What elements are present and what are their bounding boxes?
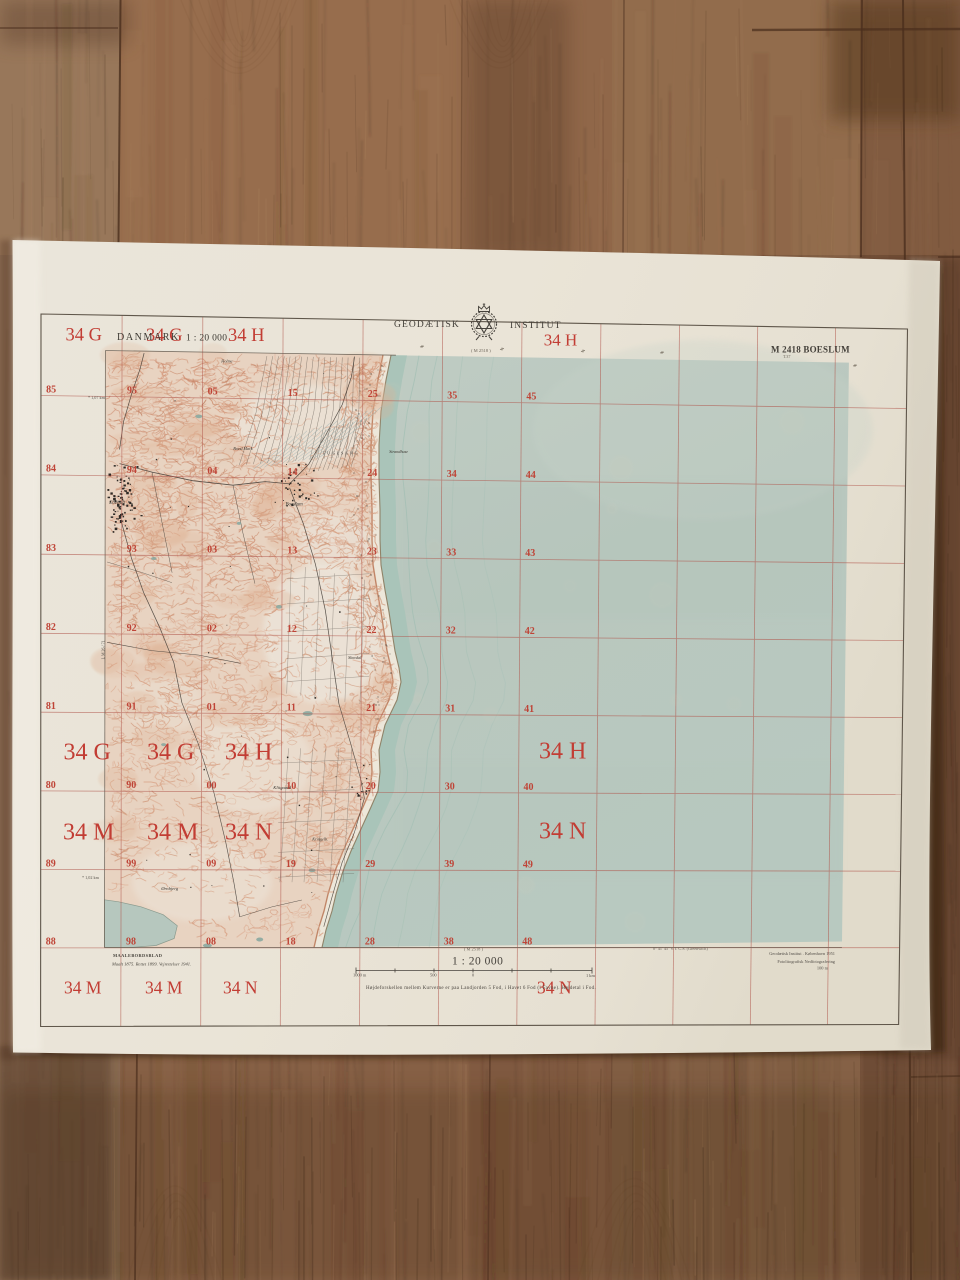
svg-text:DANMARK: DANMARK <box>117 332 180 343</box>
svg-text:Skovdal: Skovdal <box>348 655 362 660</box>
svg-text:19: 19 <box>286 859 296 870</box>
svg-text:30: 30 <box>445 782 455 793</box>
svg-text:08: 08 <box>206 937 216 948</box>
svg-text:34 N: 34 N <box>225 820 272 846</box>
svg-text:34 H: 34 H <box>225 740 272 766</box>
svg-text:Fotolitografisk Nedfotografer: Fotolitografisk Nedfotografering <box>777 959 835 964</box>
svg-text:0° 41′ 45″ v. f. C.S. (Greenwi: 0° 41′ 45″ v. f. C.S. (Greenwich) <box>653 946 708 951</box>
svg-text:100 m: 100 m <box>817 966 829 971</box>
svg-text:90: 90 <box>126 780 136 791</box>
svg-text:INSTITUT: INSTITUT <box>510 321 562 331</box>
svg-text:Højdeforskellen mellem Kurve: Højdeforskellen mellem Kurverne er paa L… <box>366 986 596 991</box>
svg-text:FUGLSANG: FUGLSANG <box>323 450 359 455</box>
svg-text:34 G: 34 G <box>64 740 111 766</box>
svg-text:34 G: 34 G <box>147 740 194 766</box>
svg-text:1 km: 1 km <box>586 973 595 978</box>
svg-text:39: 39 <box>444 859 454 870</box>
svg-text:02: 02 <box>207 624 217 635</box>
svg-text:83: 83 <box>46 543 56 554</box>
svg-text:Klitgaard: Klitgaard <box>272 785 291 790</box>
svg-text:88: 88 <box>46 937 56 948</box>
svg-text:85: 85 <box>46 384 56 395</box>
svg-text:18: 18 <box>286 937 296 948</box>
svg-text:25: 25 <box>368 389 378 400</box>
svg-text:34 M: 34 M <box>64 978 102 998</box>
svg-text:95: 95 <box>127 386 137 397</box>
svg-text:15: 15 <box>288 388 298 399</box>
svg-text:03: 03 <box>207 545 217 556</box>
svg-text:Boesl.Mark: Boesl.Mark <box>233 446 253 451</box>
svg-text:00: 00 <box>207 780 217 791</box>
svg-text:MAALEBORDSBLAD: MAALEBORDSBLAD <box>113 953 162 958</box>
svg-text:20: 20 <box>366 781 376 792</box>
svg-text:80: 80 <box>46 780 56 791</box>
svg-text:05: 05 <box>208 387 218 398</box>
svg-text:T.37: T.37 <box>783 354 790 359</box>
svg-text:45: 45 <box>526 392 536 403</box>
svg-text:Boeslum: Boeslum <box>286 502 304 507</box>
svg-text:14: 14 <box>288 467 298 478</box>
svg-text:13: 13 <box>287 546 297 557</box>
svg-text:12: 12 <box>287 624 297 635</box>
svg-text:Geodætisk Institut . Københa: Geodætisk Institut . København 1951 <box>769 951 835 956</box>
svg-text:500: 500 <box>430 973 437 978</box>
svg-text:28: 28 <box>365 937 375 948</box>
svg-text:1 : 20 000: 1 : 20 000 <box>452 956 503 968</box>
svg-text:22: 22 <box>367 625 377 636</box>
svg-text:34 G: 34 G <box>66 326 103 346</box>
svg-text:Strandhuse: Strandhuse <box>389 449 408 454</box>
svg-text:33: 33 <box>446 547 456 558</box>
svg-text:48: 48 <box>522 937 532 948</box>
svg-text:( M 2518 ): ( M 2518 ) <box>464 947 483 952</box>
svg-text:24: 24 <box>367 468 377 479</box>
svg-text:1 : 20 000: 1 : 20 000 <box>186 334 227 344</box>
svg-text:38: 38 <box>444 937 454 948</box>
svg-text:23: 23 <box>367 547 377 558</box>
svg-text:Kringelb.: Kringelb. <box>311 837 328 842</box>
svg-text:34 H: 34 H <box>544 331 578 350</box>
svg-text:11: 11 <box>287 703 296 714</box>
svg-text:21: 21 <box>366 703 376 714</box>
svg-text:40: 40 <box>524 782 534 793</box>
svg-text:34 H: 34 H <box>539 739 586 765</box>
svg-text:34 N: 34 N <box>223 978 258 998</box>
svg-text:34 M: 34 M <box>145 978 183 998</box>
svg-text:93: 93 <box>127 544 137 555</box>
svg-text:99: 99 <box>126 859 136 870</box>
svg-text:L M 26 / 71: L M 26 / 71 <box>100 640 105 659</box>
svg-text:32: 32 <box>446 626 456 637</box>
svg-text:GEODÆTISK: GEODÆTISK <box>394 320 460 330</box>
svg-text:49: 49 <box>523 859 533 870</box>
svg-text:41: 41 <box>524 704 534 715</box>
svg-text:89: 89 <box>46 858 56 869</box>
svg-text:43: 43 <box>525 548 535 559</box>
svg-text:Ebeltoft: Ebeltoft <box>108 501 125 506</box>
svg-text:81: 81 <box>46 701 56 712</box>
svg-text:84: 84 <box>46 464 56 475</box>
svg-text:34 H: 34 H <box>228 326 265 346</box>
svg-text:Ørnbjerg: Ørnbjerg <box>160 886 179 891</box>
svg-text:34: 34 <box>447 469 457 480</box>
svg-text:34 M: 34 M <box>63 820 114 846</box>
svg-text:1000 m: 1000 m <box>353 973 367 978</box>
svg-text:82: 82 <box>46 622 56 633</box>
svg-text:( M 2518 ): ( M 2518 ) <box>471 348 491 353</box>
svg-text:09: 09 <box>206 859 216 870</box>
svg-text:34 N: 34 N <box>539 819 586 845</box>
svg-text:35: 35 <box>447 390 457 401</box>
svg-text:04: 04 <box>207 466 217 477</box>
svg-text:Maalt 1875. Rettet 1899. Vej: Maalt 1875. Rettet 1899. Vejrettelser 19… <box>111 962 191 967</box>
svg-text:Holme: Holme <box>220 359 232 364</box>
svg-text:M 2418 BOESLUM: M 2418 BOESLUM <box>771 345 850 355</box>
svg-text:94: 94 <box>127 465 137 476</box>
svg-text:31: 31 <box>445 704 455 715</box>
svg-text:91: 91 <box>127 702 137 713</box>
svg-text:98: 98 <box>126 937 136 948</box>
svg-text:01: 01 <box>207 702 217 713</box>
svg-text:42: 42 <box>525 626 535 637</box>
svg-text:92: 92 <box>127 623 137 634</box>
svg-text:34 M: 34 M <box>147 820 198 846</box>
svg-text:44: 44 <box>526 470 536 481</box>
svg-text:29: 29 <box>365 859 375 870</box>
